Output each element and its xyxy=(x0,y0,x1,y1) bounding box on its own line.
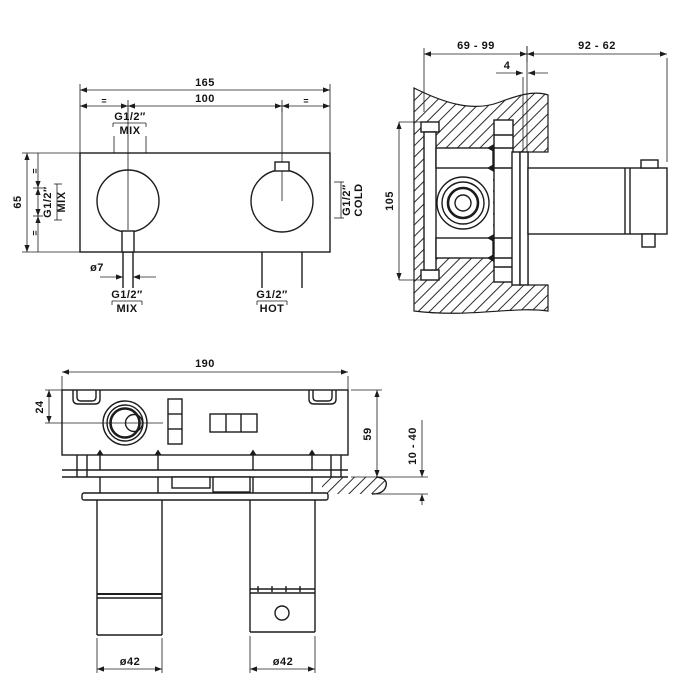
equal-mark-left-bottom: = xyxy=(30,230,40,235)
dim-cartridge-offset: 24 xyxy=(34,400,46,414)
mixer-plate xyxy=(80,108,330,288)
built-in-box xyxy=(45,390,348,493)
port-right-label-group: G1/2″ COLD xyxy=(334,182,365,218)
right-knob-notch xyxy=(275,162,289,171)
handle-stem xyxy=(528,160,667,247)
handle-left xyxy=(97,500,162,635)
left-knob-pin xyxy=(122,231,134,252)
dim-body-height: 105 xyxy=(384,191,396,211)
connection-stub-left xyxy=(172,477,210,488)
equal-mark-top-right: = xyxy=(303,96,308,106)
port-bottom-right-label: HOT xyxy=(260,303,285,315)
section-view: 69 - 99 92 - 62 4 105 xyxy=(384,40,667,313)
dim-protrusion: 92 - 62 xyxy=(578,40,616,52)
stem-bottom-stub xyxy=(642,234,655,247)
connection-stub-right xyxy=(213,477,250,492)
dim-190-group: 190 xyxy=(62,358,348,390)
equal-mark-left-top: = xyxy=(30,168,40,173)
front-view: 165 100 = = G1/2″ MIX xyxy=(12,77,365,315)
port-bottom-left-label: MIX xyxy=(116,303,137,315)
dim-body-depth: 59 xyxy=(362,427,374,440)
port-top-label: MIX xyxy=(119,125,140,137)
dim-100-group: 100 = = xyxy=(80,93,330,112)
dim-24-group: 24 xyxy=(34,390,62,423)
stem-top-key xyxy=(641,160,658,168)
port-top-label-group: G1/2″ MIX xyxy=(113,111,146,153)
trim-plate xyxy=(520,152,528,285)
wall-tile-section xyxy=(322,477,428,494)
port-bottom-right-label-group: G1/2″ HOT xyxy=(256,289,288,315)
dim-bottom-width: 190 xyxy=(195,358,215,370)
dim-wall-range-group: 10 - 40 xyxy=(407,420,425,505)
port-right-size: G1/2″ xyxy=(341,184,353,216)
mixer-valve-technical-drawing: 165 100 = = G1/2″ MIX xyxy=(0,0,700,700)
dim-handle-right-group: ø42 xyxy=(250,636,315,673)
port-right-label: COLD xyxy=(353,183,365,216)
dim-handle-right-diameter: ø42 xyxy=(273,656,293,668)
wall-plate xyxy=(82,493,328,500)
dim-plate-offset: 4 xyxy=(504,60,511,72)
technical-drawing-page: 165 100 = = G1/2″ MIX xyxy=(0,0,700,700)
dim-front-height: 65 xyxy=(12,195,24,208)
port-left-label: MIX xyxy=(56,191,68,212)
dim-59-group: 59 xyxy=(351,390,382,477)
dim-handle-left-diameter: ø42 xyxy=(120,656,140,668)
port-bottom-left-label-group: G1/2″ MIX xyxy=(111,289,143,315)
port-top-size: G1/2″ xyxy=(114,111,146,123)
dim-pin-diameter: ø7 xyxy=(90,262,104,274)
lower-duct xyxy=(436,238,493,258)
port-left-size: G1/2″ xyxy=(42,186,54,218)
dim-wall-range: 10 - 40 xyxy=(407,427,419,465)
port-bottom-right-size: G1/2″ xyxy=(256,289,288,301)
bottom-view: 190 xyxy=(34,358,428,673)
upper-duct xyxy=(436,148,493,168)
dim-handle-left-group: ø42 xyxy=(97,638,162,673)
port-left-label-group: G1/2″ MIX xyxy=(42,184,68,220)
dim-front-width: 165 xyxy=(195,77,215,89)
dim-front-centers: 100 xyxy=(195,93,215,105)
equal-mark-top-left: = xyxy=(101,96,106,106)
port-bottom-left-size: G1/2″ xyxy=(111,289,143,301)
dim-recess-depth: 69 - 99 xyxy=(457,40,495,52)
handle-button xyxy=(275,606,289,620)
in-wall-bracket-plate xyxy=(512,152,520,285)
handle-right xyxy=(250,500,315,632)
